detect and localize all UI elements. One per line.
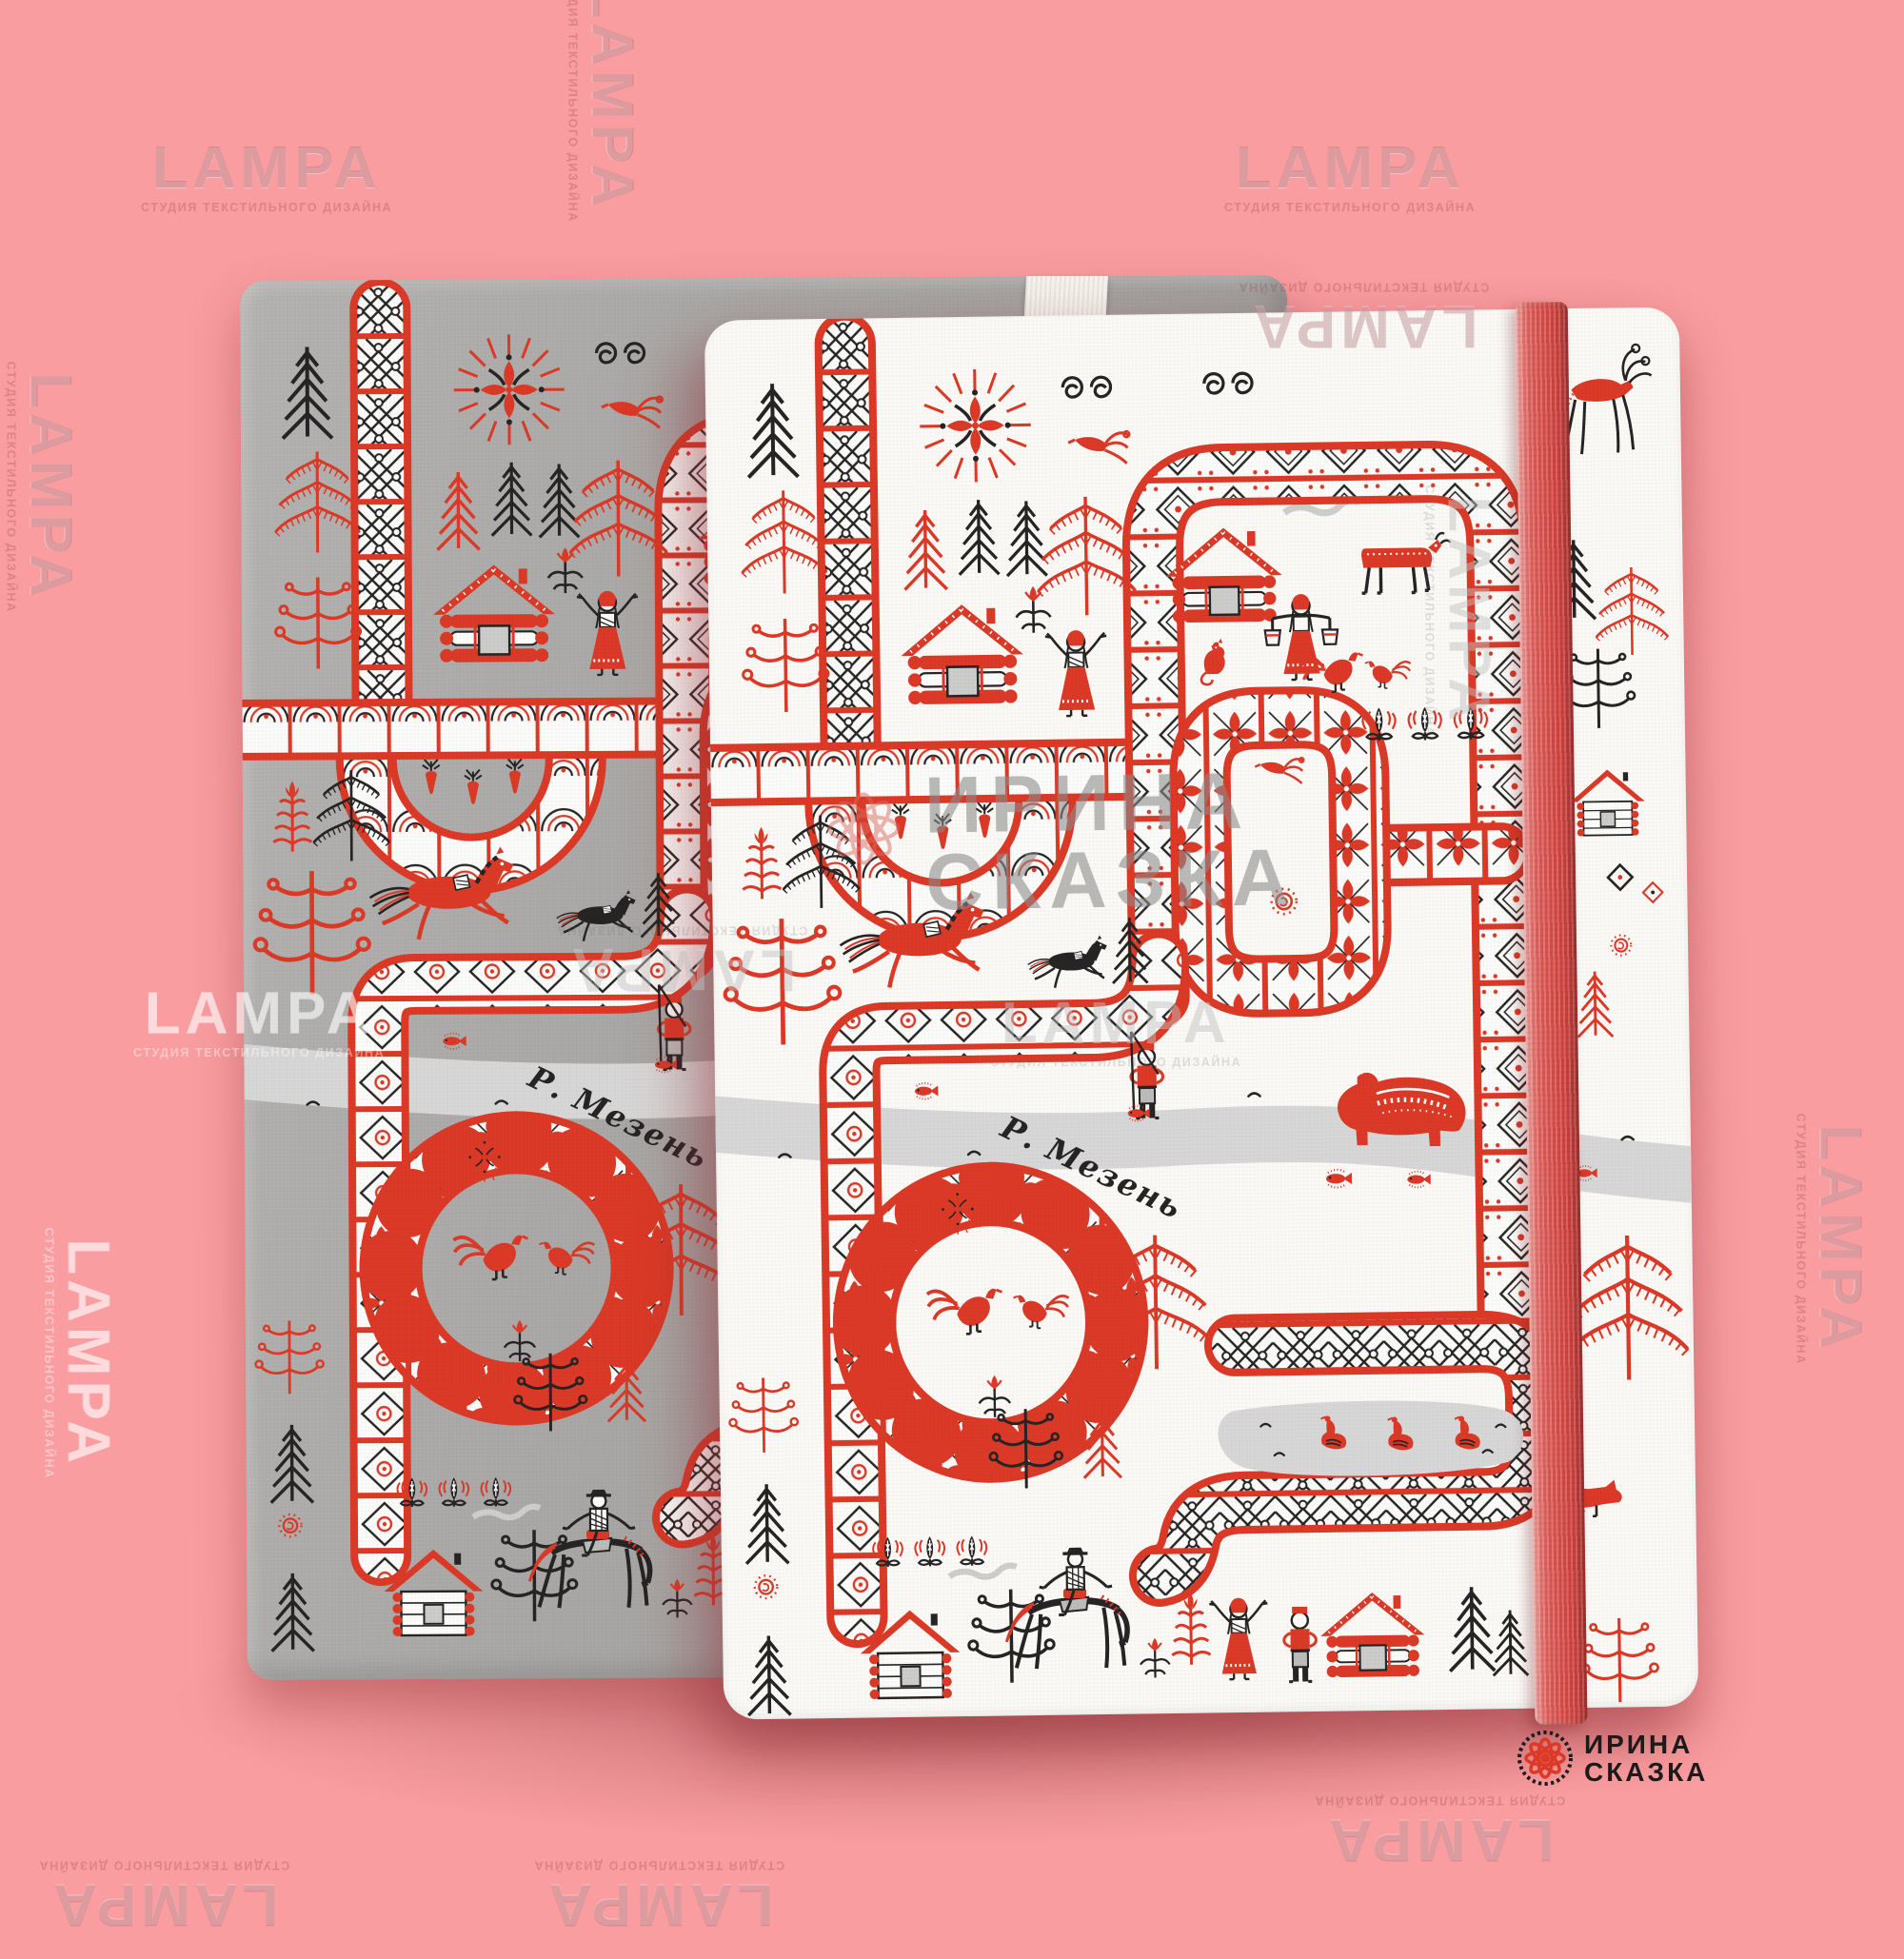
lampa-watermark: LAMPAСТУДИЯ ТЕКСТИЛЬНОГО ДИЗАЙНА	[0, 362, 79, 613]
logo-line2: СКАЗКА	[1584, 1758, 1708, 1786]
lampa-watermark: LAMPAСТУДИЯ ТЕКСТИЛЬНОГО ДИЗАЙНА	[1224, 139, 1476, 218]
lampa-watermark: LAMPAСТУДИЯ ТЕКСТИЛЬНОГО ДИЗАЙНА	[38, 1228, 117, 1479]
logo-line1: ИРИНА	[1584, 1731, 1708, 1758]
irina-skazka-logo: ИРИНА СКАЗКА	[1516, 1729, 1708, 1788]
product-photo: Р. Мезень	[0, 0, 1904, 1959]
lampa-watermark: LAMPAСТУДИЯ ТЕКСТИЛЬНОГО ДИЗАЙНА	[1790, 1114, 1869, 1365]
lampa-watermark: LAMPAСТУДИЯ ТЕКСТИЛЬНОГО ДИЗАЙНА	[38, 1854, 289, 1933]
lampa-watermark: LAMPAСТУДИЯ ТЕКСТИЛЬНОГО ДИЗАЙНА	[533, 1854, 784, 1933]
rosette-logo-icon	[1516, 1729, 1575, 1788]
white-notebook: ИРИНА СКАЗКА	[704, 307, 1698, 1719]
lampa-watermark: LAMPAСТУДИЯ ТЕКСТИЛЬНОГО ДИЗАЙНА	[562, 0, 641, 223]
lampa-watermark: LAMPAСТУДИЯ ТЕКСТИЛЬНОГО ДИЗАЙНА	[141, 139, 392, 218]
